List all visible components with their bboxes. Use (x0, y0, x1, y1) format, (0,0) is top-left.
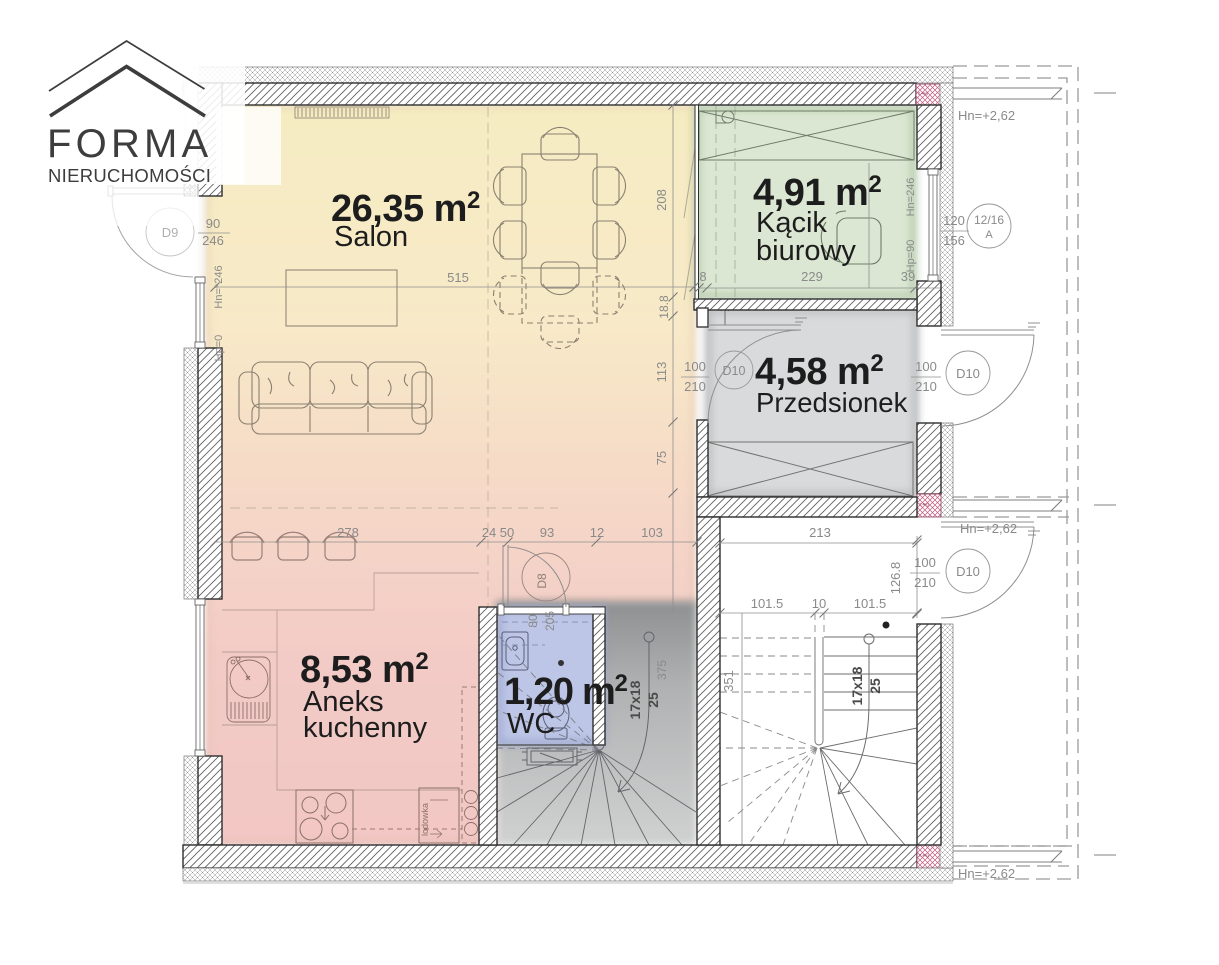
svg-text:75: 75 (654, 451, 669, 465)
svg-text:278: 278 (337, 525, 359, 540)
svg-text:24: 24 (482, 525, 496, 540)
svg-text:213: 213 (809, 525, 831, 540)
svg-text:Hp=90: Hp=90 (905, 240, 917, 273)
svg-text:50: 50 (500, 525, 514, 540)
svg-text:18.8: 18.8 (657, 295, 671, 319)
svg-text:210: 210 (914, 575, 936, 590)
svg-text:210: 210 (684, 379, 706, 394)
svg-text:D10: D10 (956, 564, 980, 579)
svg-text:515: 515 (447, 270, 469, 285)
svg-text:lodowka: lodowka (420, 803, 430, 836)
svg-text:Salon: Salon (334, 221, 408, 253)
svg-text:Hn=246: Hn=246 (905, 178, 917, 217)
svg-text:D8: D8 (535, 573, 549, 589)
svg-text:156: 156 (943, 233, 965, 248)
svg-text:351: 351 (721, 670, 736, 692)
svg-text:80: 80 (526, 614, 540, 628)
svg-text:8,53 m2: 8,53 m2 (300, 648, 428, 691)
svg-text:93: 93 (540, 525, 554, 540)
svg-text:12: 12 (590, 525, 604, 540)
svg-text:229: 229 (801, 269, 823, 284)
svg-text:8: 8 (699, 269, 706, 284)
svg-text:D10: D10 (956, 366, 980, 381)
svg-text:25: 25 (867, 678, 883, 694)
svg-text:2.4kg: 2.4kg (919, 853, 929, 858)
svg-text:Hn=*246: Hn=*246 (213, 265, 225, 308)
svg-text:120: 120 (943, 213, 965, 228)
svg-text:FORMA: FORMA (47, 122, 212, 166)
svg-text:375: 375 (655, 660, 669, 680)
svg-text:25: 25 (645, 692, 661, 708)
svg-text:17x18: 17x18 (849, 666, 865, 705)
svg-text:D9: D9 (162, 225, 179, 240)
svg-text:Hn=+2,62: Hn=+2,62 (958, 108, 1015, 123)
svg-text:210: 210 (915, 379, 937, 394)
svg-text:100: 100 (914, 555, 936, 570)
svg-text:2.4kg: 2.4kg (919, 502, 929, 507)
svg-text:NIERUCHOMOŚCI: NIERUCHOMOŚCI (48, 165, 211, 186)
svg-text:Hn=+2,62: Hn=+2,62 (960, 521, 1017, 536)
svg-text:205: 205 (543, 611, 557, 631)
svg-text:2.4kg: 2.4kg (918, 91, 928, 96)
svg-text:101.5: 101.5 (751, 596, 784, 611)
svg-text:103: 103 (641, 525, 663, 540)
svg-text:10: 10 (812, 596, 826, 611)
svg-text:113: 113 (654, 362, 669, 383)
svg-text:Przedsionek: Przedsionek (756, 387, 908, 418)
svg-text:101.5: 101.5 (854, 596, 887, 611)
svg-text:17x18: 17x18 (627, 680, 643, 719)
svg-text:208: 208 (654, 189, 669, 211)
svg-text:Hp=0: Hp=0 (213, 335, 225, 362)
svg-text:1,20 m2: 1,20 m2 (504, 670, 628, 713)
svg-text:Hn=+2,62: Hn=+2,62 (958, 866, 1015, 881)
svg-text:WC: WC (507, 708, 555, 740)
svg-text:100: 100 (915, 359, 937, 374)
svg-text:126.8: 126.8 (888, 562, 903, 595)
svg-text:12/16: 12/16 (974, 213, 1004, 227)
svg-text:D10: D10 (723, 364, 746, 378)
svg-text:90: 90 (206, 216, 220, 231)
svg-text:A: A (985, 229, 993, 241)
svg-text:100: 100 (684, 359, 706, 374)
svg-text:246: 246 (202, 233, 224, 248)
svg-text:kuchenny: kuchenny (303, 712, 428, 744)
svg-text:biurowy: biurowy (756, 235, 856, 267)
